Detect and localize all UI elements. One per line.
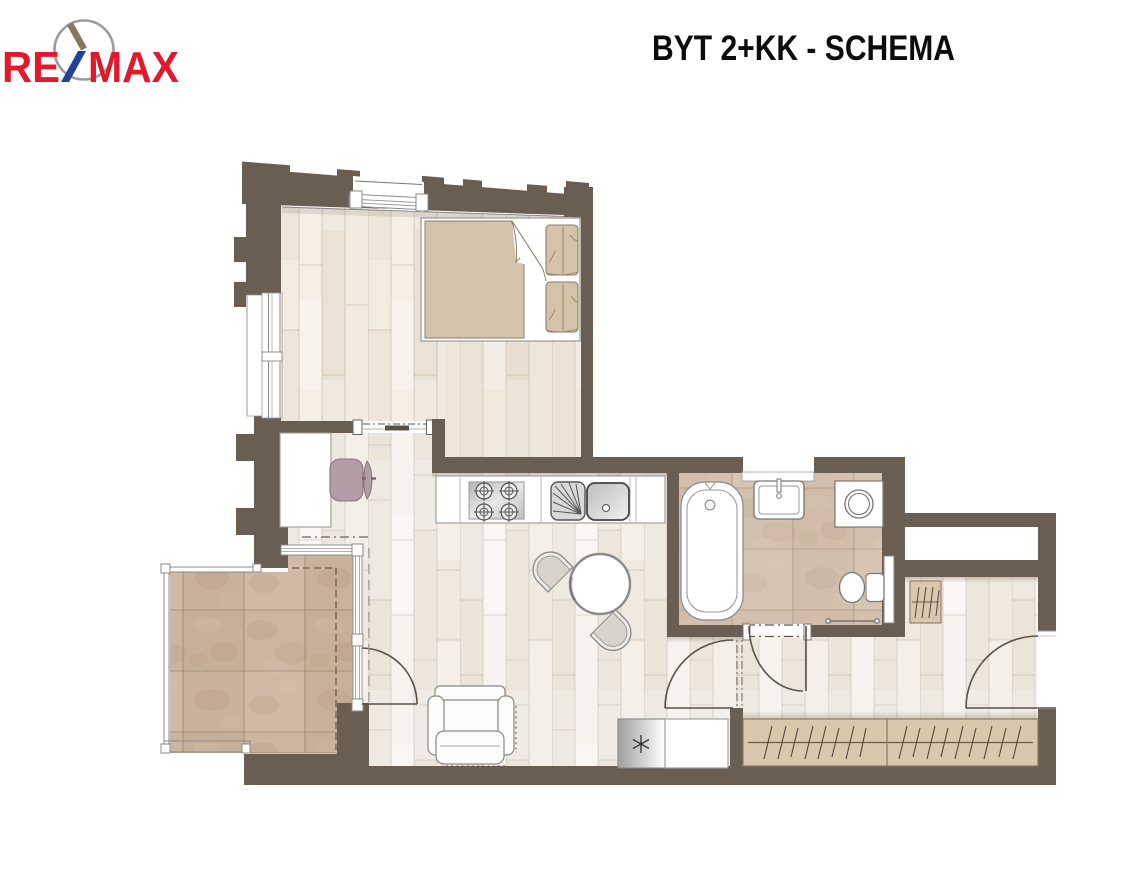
svg-text:RE: RE [2, 44, 60, 92]
svg-text:BYT 2+KK - SCHEMA: BYT 2+KK - SCHEMA [652, 29, 955, 68]
svg-text:MAX: MAX [88, 44, 179, 92]
